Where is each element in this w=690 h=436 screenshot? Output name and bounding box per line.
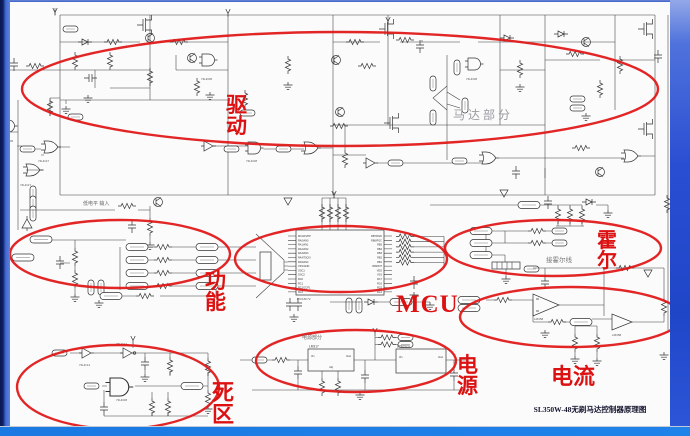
schematic-caption: SL350W-48无刷马达控制器原理图: [505, 404, 675, 415]
mcu-pin-label: RC3: [298, 291, 304, 294]
motor-section-note: 马达部分: [453, 106, 513, 123]
mcu-pin-label: OSC2: [298, 274, 305, 277]
mcu-pin-label: VDD: [377, 269, 382, 272]
part-ref-label: 74HC14: [79, 363, 90, 367]
part-ref-label: 74HC08: [246, 159, 257, 163]
mcu-pin-label: RA3/AN3: [298, 252, 309, 255]
drive-region-label: 驱动: [226, 95, 247, 138]
slide-border-top: [0, 0, 690, 2]
mcu-pin-label: RA1/AN1: [298, 244, 309, 247]
mcu-pin-label: RA5/AN4: [298, 261, 309, 264]
mcu-pin-label: RA0/AN0: [298, 239, 309, 242]
part-ref-label: LM358: [612, 333, 622, 337]
mcu-pin-label: RB7/PGD: [371, 235, 382, 238]
mcu-pin-label: OSC1: [298, 269, 305, 272]
slide-border-left: [0, 0, 10, 436]
hall-section-circuit: [430, 195, 670, 283]
regulator-7805: [396, 349, 446, 373]
mcu-region-label: MCU: [396, 292, 459, 317]
reg-pin-label: Adj: [329, 366, 333, 369]
power-section-circuit: LM317 Vin Vout Adj L7805CV Vin Vout: [240, 328, 468, 399]
power-section-note: 电源部分: [302, 334, 322, 341]
drive-region-ellipse: [22, 32, 658, 146]
reg-pin-label: Vin: [311, 355, 315, 358]
mcu-pin-label: RC7: [377, 278, 383, 281]
mcu-pin-label: RC0: [298, 278, 304, 281]
mcu-pin-label: RB2: [377, 257, 382, 260]
reg-pin-label: Vin: [399, 356, 403, 359]
part-ref-label: 74HC27: [20, 183, 31, 187]
part-ref-label: LM358: [534, 317, 544, 321]
part-ref-label: L7805CV: [397, 345, 411, 349]
current-section-circuit: LM358 LM358: [458, 265, 669, 365]
mcu-pin-label: RA4/T0CKI: [298, 257, 311, 260]
part-ref-label: 74HC08: [466, 77, 477, 81]
function-region-label: 功能: [205, 271, 226, 314]
hall-wire-note: 接霍尔线: [546, 254, 572, 264]
power-region-ellipse: [256, 330, 456, 392]
mcu-pin-label: RC4: [377, 291, 383, 294]
mcu-pin-label: RC6: [377, 282, 383, 285]
reg-pin-label: Vout: [346, 355, 351, 358]
low-level-input-note: 低电平 输入: [83, 200, 109, 207]
current-region-ellipse: [460, 287, 682, 347]
mcu-pin-label: RB0/INT: [372, 265, 382, 268]
mcu-pin-label: RB4: [377, 248, 382, 251]
mcu-pin-label: VSS: [377, 274, 382, 277]
part-ref-label: 74HC08: [116, 398, 127, 402]
deadzone-region-label: 死区: [212, 382, 234, 427]
part-ref-label: 74HC08: [201, 77, 212, 81]
part-ref-label: LM317: [309, 345, 319, 349]
mcu-pin-label: RB1: [377, 261, 382, 264]
mcu-pin-label: RB6/PGC: [371, 239, 382, 242]
mcu-region-ellipse: [235, 226, 447, 292]
mcu-pin-label: VSS/GND: [298, 265, 309, 268]
mcu-pin-label: RB5: [377, 244, 382, 247]
mcu-pin-label: RC1: [298, 282, 304, 285]
mcu-pin-label: MCLR/VPP: [298, 235, 311, 238]
part-ref-label: 74HC27: [38, 159, 49, 163]
power-region-label: 电源: [457, 355, 478, 398]
reg-pin-label: Vout: [438, 356, 443, 359]
slide-page: 74HC08 74HC08 74HC08: [0, 0, 690, 436]
hall-region-label: 霍尔: [597, 231, 617, 272]
slide-border-right: [670, 0, 690, 436]
current-region-label: 电流: [551, 366, 595, 388]
mcu-part-number: PIC16F72: [297, 297, 311, 301]
driver-section-circuit: 74HC08 74HC08 74HC08: [10, 8, 668, 330]
logic-column-circuit: 74HC27 74HC27 74HC08: [0, 98, 83, 231]
mcu-pin-label: RB3: [377, 252, 382, 255]
slide-border-bottom: [0, 427, 690, 436]
mcu-pin-label: RA2/AN2: [298, 248, 309, 251]
